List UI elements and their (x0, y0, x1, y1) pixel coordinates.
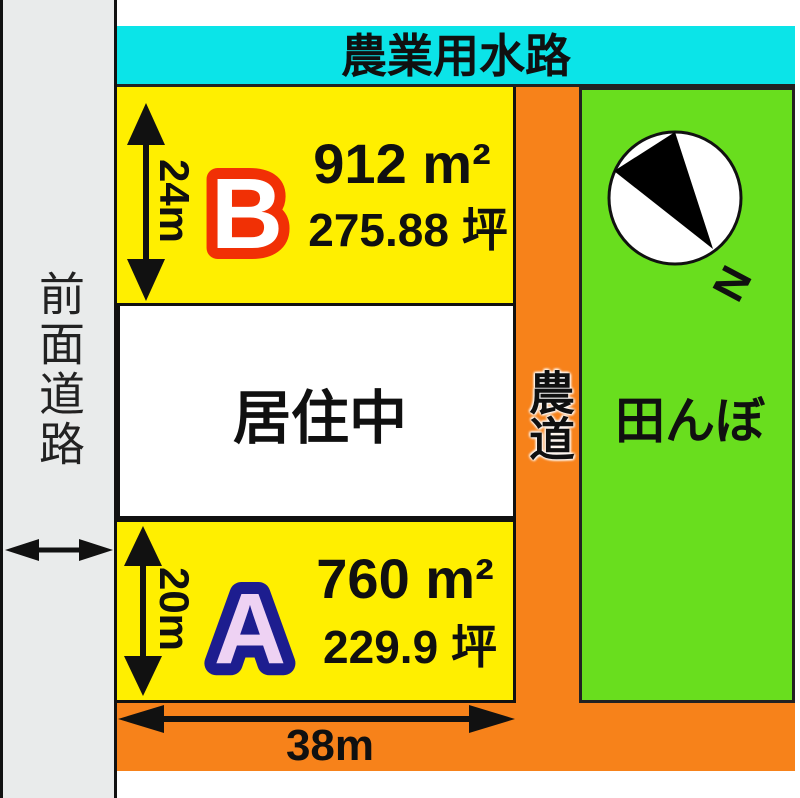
plot-a-letter: A (175, 541, 325, 691)
front-road-width-arrow (5, 537, 113, 563)
svg-text:A: A (214, 573, 286, 685)
farm-road-label: 農道 (526, 369, 572, 461)
waterway-label: 農業用水路 (341, 33, 571, 79)
rice-paddy-label: 田んぼ (615, 396, 765, 446)
occupied-label: 居住中 (233, 390, 407, 448)
compass-icon (605, 128, 745, 268)
front-road-label: 前面道路 (36, 270, 82, 470)
land-plot-diagram: 前面道路 農業用水路 24m B 912 m² 275.88 坪 38m 居住中… (0, 0, 800, 798)
plot-b-letter: B (172, 126, 322, 276)
svg-text:B: B (211, 158, 283, 270)
plot-a-area-tsubo: 229.9 坪 (323, 624, 497, 670)
plot-a-width-label: 38m (286, 724, 374, 768)
plot-a-area-m2: 760 m² (316, 551, 493, 607)
plot-b-area-tsubo: 275.88 坪 (308, 207, 507, 253)
plot-b-area-m2: 912 m² (313, 136, 490, 192)
